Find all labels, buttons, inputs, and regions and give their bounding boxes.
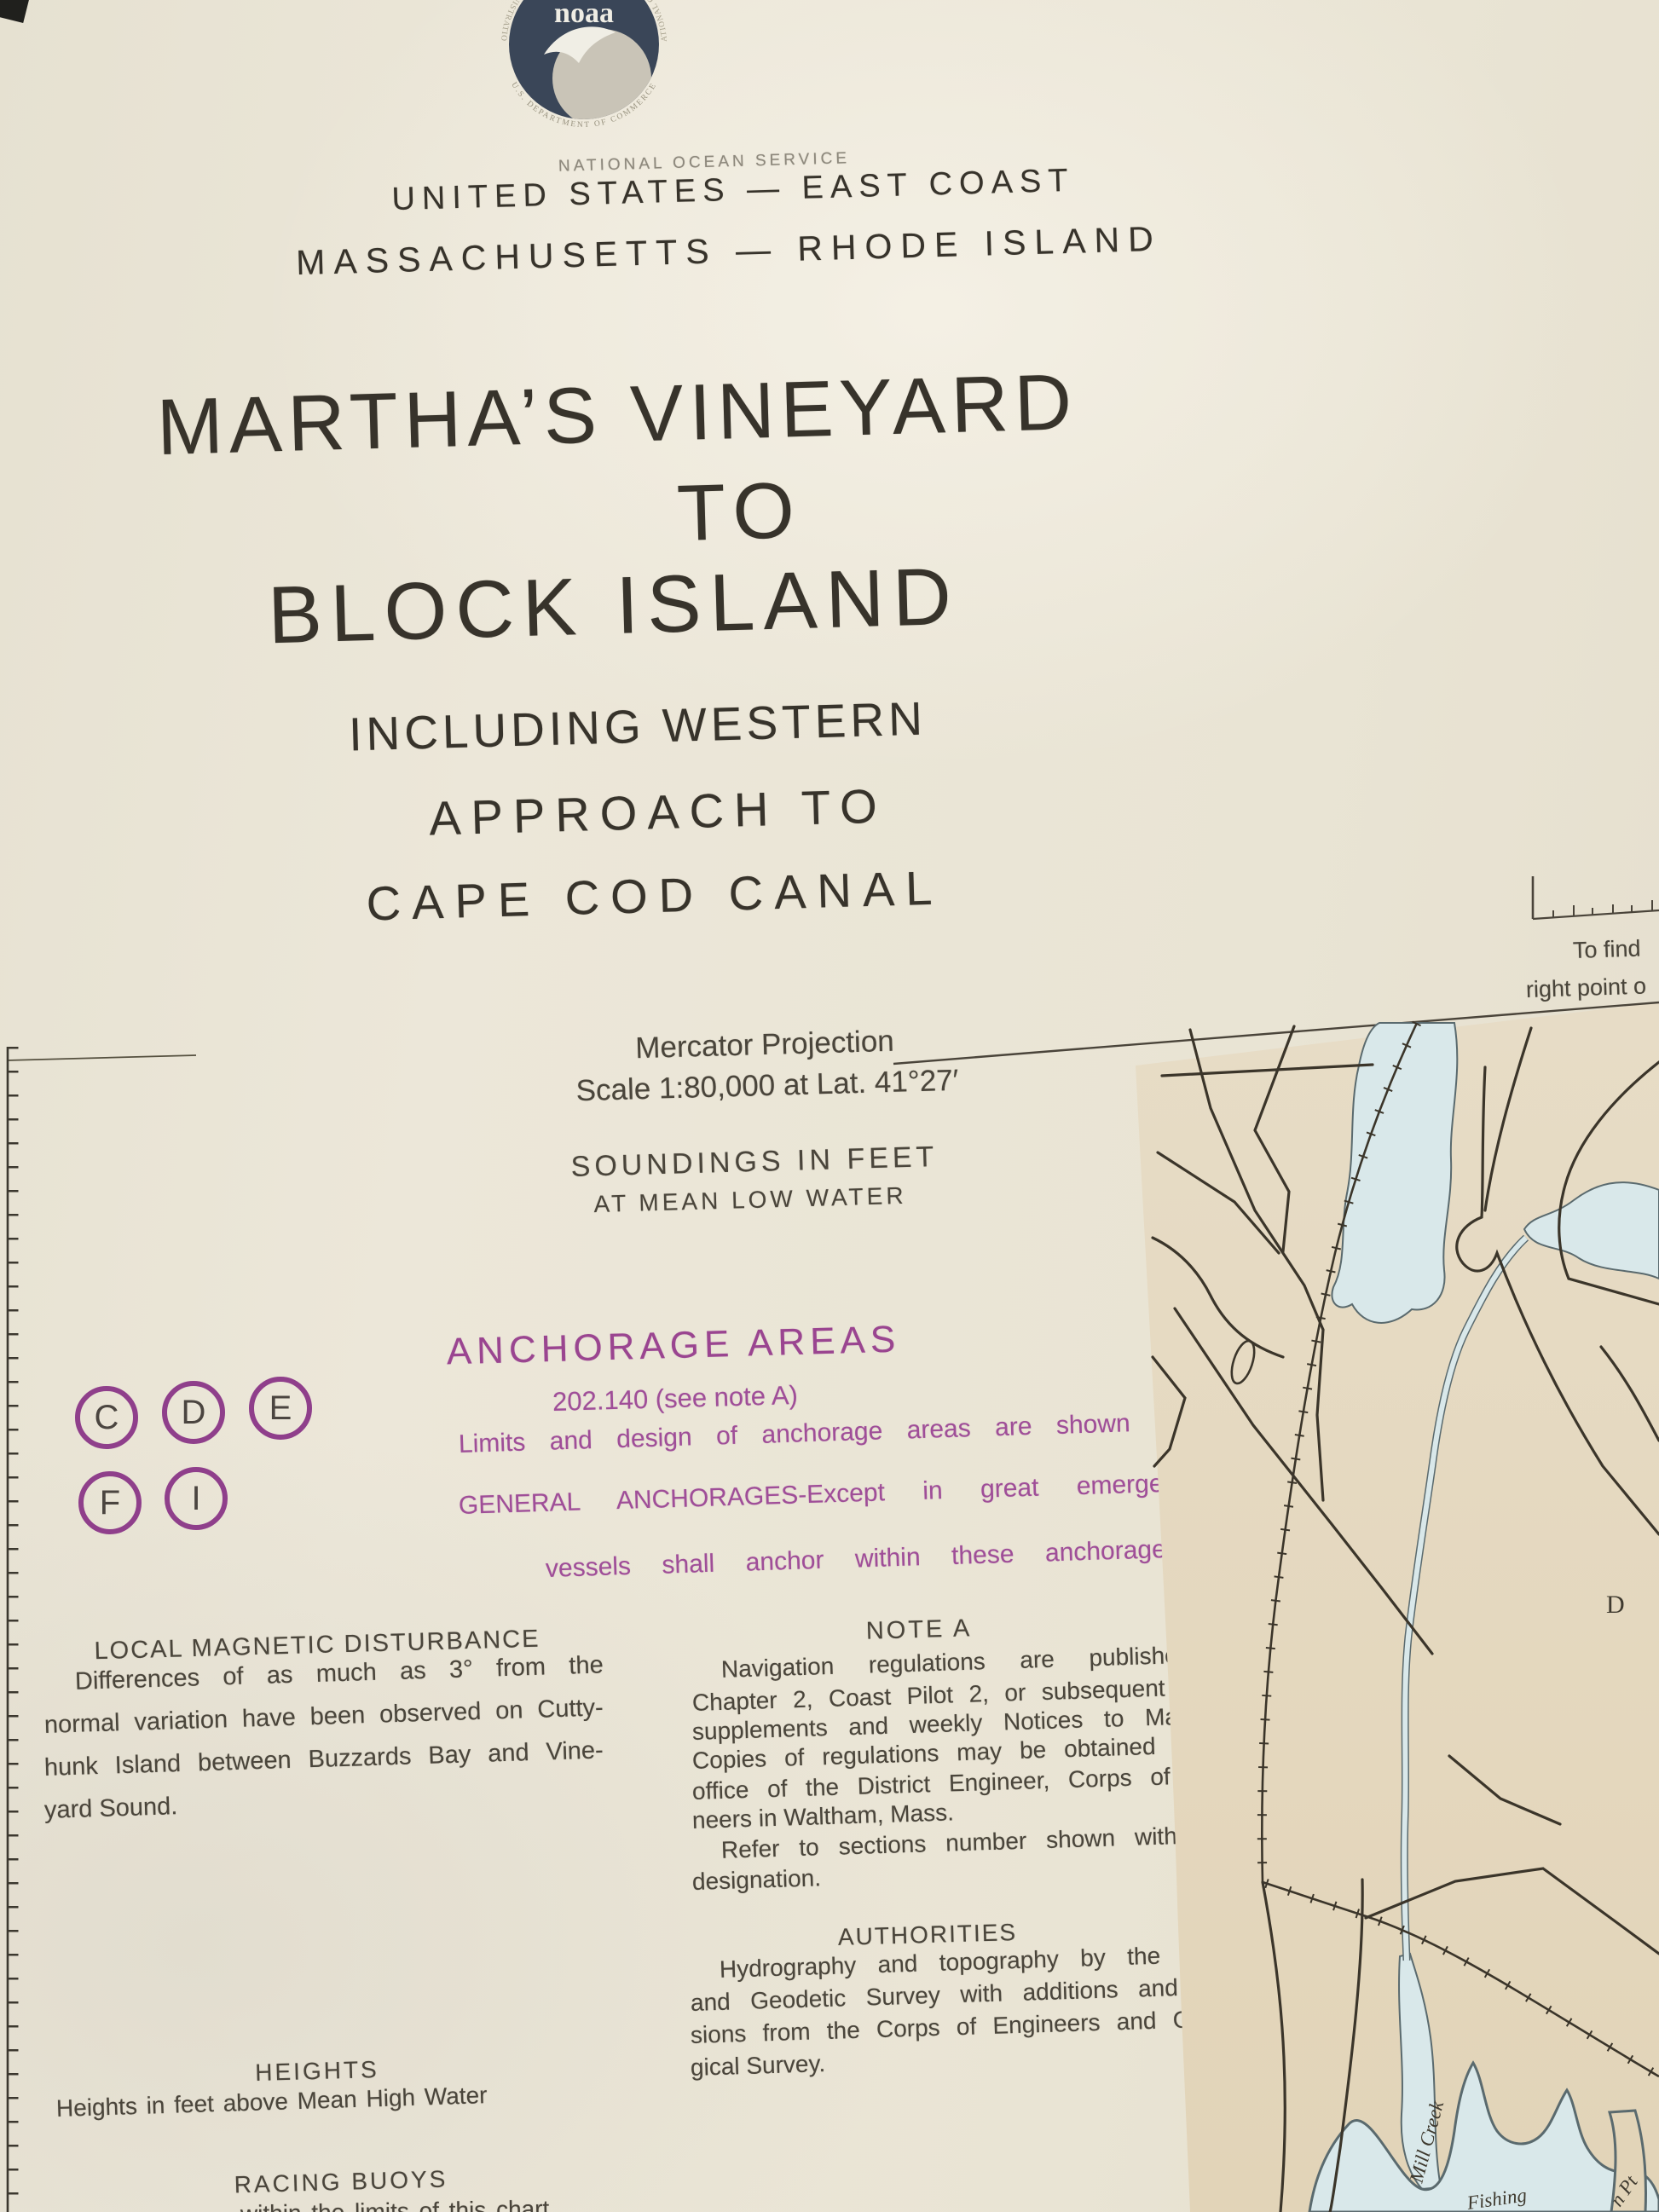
chart-paper: noaa U.S. DEPARTMENT OF COMMERCE NATIONA… <box>0 0 1659 2212</box>
border-dash-line <box>7 1055 196 1060</box>
latitude-scale-ruler <box>8 1047 13 2212</box>
chart-map-area: Mill Creek Fishing n Pt D <box>0 0 1659 2212</box>
speed-scale-ruler <box>1533 876 1659 919</box>
placename-letter-fragment: D <box>1606 1591 1625 1619</box>
